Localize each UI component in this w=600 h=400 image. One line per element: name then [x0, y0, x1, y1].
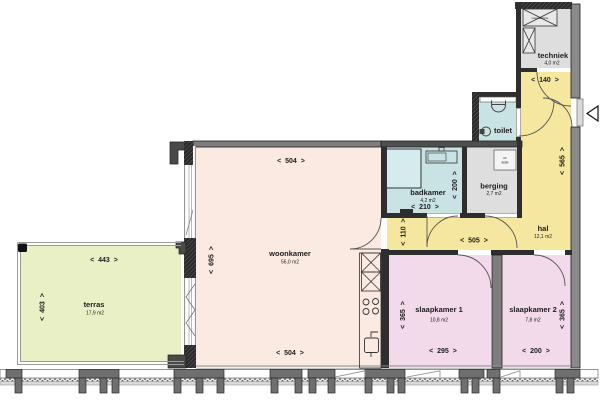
svg-text:< 504 >: < 504 >	[277, 158, 305, 165]
svg-text:< 565 >: < 565 >	[560, 147, 567, 175]
svg-text:slaapkamer 2: slaapkamer 2	[509, 305, 557, 314]
svg-text:< 110 >: < 110 >	[401, 218, 408, 245]
svg-text:toilet: toilet	[494, 126, 512, 135]
svg-text:hal: hal	[538, 224, 549, 233]
svg-text:< 295 >: < 295 >	[429, 348, 457, 355]
svg-text:17,9 m2: 17,9 m2	[86, 311, 104, 317]
svg-text:ketel: ketel	[502, 161, 509, 165]
svg-text:badkamer: badkamer	[410, 188, 446, 197]
svg-text:< 443 >: < 443 >	[90, 257, 118, 264]
svg-text:techniek: techniek	[538, 51, 569, 60]
svg-text:12,1 m2: 12,1 m2	[534, 234, 552, 240]
svg-text:< 504 >: < 504 >	[276, 350, 304, 357]
svg-text:< 505 >: < 505 >	[460, 238, 488, 245]
svg-text:woonkamer: woonkamer	[268, 249, 311, 258]
svg-text:< 210 >: < 210 >	[411, 204, 439, 211]
svg-text:56,0 m2: 56,0 m2	[281, 260, 299, 266]
svg-text:< 365 >: < 365 >	[560, 301, 567, 329]
svg-text:slaapkamer 1: slaapkamer 1	[415, 305, 463, 314]
svg-text:7,8 m2: 7,8 m2	[525, 318, 541, 324]
svg-text:< 403 >: < 403 >	[40, 293, 47, 321]
svg-text:terras: terras	[84, 300, 105, 309]
svg-text:< 200 >: < 200 >	[522, 348, 550, 355]
svg-text:< 140 >: < 140 >	[531, 77, 559, 84]
svg-text:< 365 >: < 365 >	[400, 301, 407, 329]
svg-text:< 695 >: < 695 >	[209, 246, 216, 274]
svg-text:wasmachine: wasmachine	[532, 16, 549, 20]
svg-text:10,8 m2: 10,8 m2	[430, 318, 448, 324]
svg-text:4,0 m2: 4,0 m2	[544, 61, 560, 67]
svg-text:< 200 >: < 200 >	[452, 171, 459, 199]
svg-text:berging: berging	[480, 182, 508, 191]
svg-text:2,7 m2: 2,7 m2	[486, 191, 502, 197]
svg-text:cv: cv	[503, 156, 507, 160]
